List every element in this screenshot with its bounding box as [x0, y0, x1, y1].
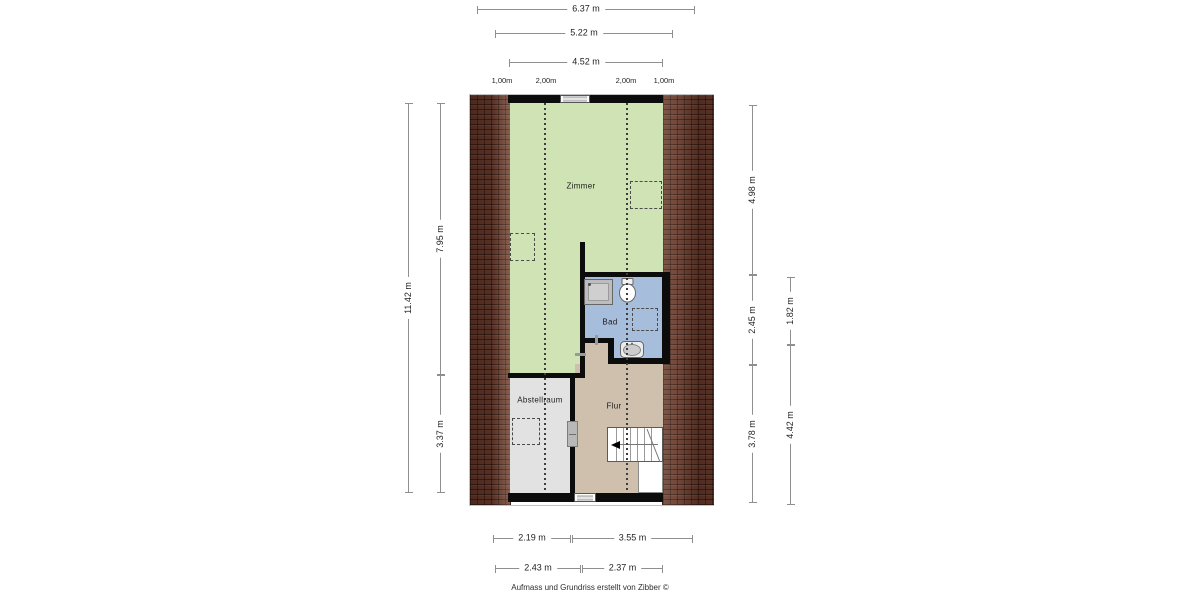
- dimension-top-inner: 5.22 m: [495, 33, 673, 34]
- room-label-flur: Flur: [607, 402, 622, 411]
- window-top: [560, 95, 590, 103]
- shower-drain: [588, 283, 591, 286]
- dimension-small-2: 2,00m: [536, 76, 557, 85]
- dimension-right-flur: 3.78 m: [752, 365, 753, 503]
- dimension-top-room: 4.52 m: [509, 62, 663, 63]
- furniture-outline-zimmer-right: [630, 181, 662, 209]
- dimension-right-flur-width: 4.42 m: [790, 345, 791, 505]
- dimension-label: 2.19 m: [513, 534, 551, 544]
- dimension-bottom-flur: 3.55 m: [572, 538, 693, 539]
- dimension-small-1: 1,00m: [492, 76, 513, 85]
- furniture-outline-bad: [632, 308, 658, 331]
- stairs: [607, 427, 663, 462]
- dimension-label: 6.37 m: [567, 5, 605, 15]
- shower-icon: [584, 279, 613, 305]
- dimension-label: 3.55 m: [614, 534, 652, 544]
- room-label-bad: Bad: [602, 318, 617, 327]
- stairwell-void: [638, 462, 663, 493]
- wall-bad-top: [580, 272, 663, 277]
- dimension-left-total: 11.42 m: [408, 103, 409, 493]
- dimension-bottom-left2: 2.43 m: [495, 568, 581, 569]
- furniture-outline-zimmer-left: [510, 233, 535, 261]
- wall-bad-bottom-right: [608, 358, 670, 364]
- door-opening-zimmer: [575, 353, 586, 356]
- wall-bad-right: [662, 272, 670, 364]
- dimension-label: 2.45 m: [748, 301, 758, 339]
- knee-wall-guide-left: [544, 103, 546, 493]
- dimension-right-zimmer: 4.98 m: [752, 105, 753, 275]
- dimension-top-total: 6.37 m: [477, 9, 695, 10]
- dimension-small-3: 2,00m: [616, 76, 637, 85]
- knee-wall-guide-right: [626, 103, 628, 493]
- stairs-down-arrow-icon: [611, 441, 620, 449]
- dimension-label: 3.37 m: [436, 415, 446, 453]
- roof-hatch-left: [470, 95, 511, 505]
- floor-plan: Zimmer Bad Abstellraum Flur: [470, 95, 713, 505]
- floorplan-page: 6.37 m 5.22 m 4.52 m 1,00m 2,00m 2,00m 1…: [0, 0, 1200, 600]
- door-opening-bad: [595, 335, 598, 345]
- sliding-door-abstellraum: [567, 421, 578, 447]
- dimension-label: 4.42 m: [786, 406, 796, 444]
- dimension-label: 4.52 m: [567, 58, 605, 68]
- wall-zimmer-bad-divider: [580, 242, 585, 378]
- dimension-label: 11.42 m: [404, 277, 414, 319]
- dimension-label: 4.98 m: [748, 171, 758, 209]
- room-label-abstellraum: Abstellraum: [517, 396, 563, 405]
- window-pane: [563, 97, 587, 102]
- dimension-bottom-right2: 2.37 m: [582, 568, 663, 569]
- dimension-bottom-abstellraum: 2.19 m: [493, 538, 571, 539]
- room-label-zimmer: Zimmer: [567, 182, 596, 191]
- dimension-left-upper: 7.95 m: [440, 103, 441, 375]
- shower-tray: [588, 283, 609, 301]
- window-bottom: [574, 493, 596, 502]
- credit-text: Aufmass und Grundriss erstellt von Zibbe…: [470, 583, 710, 592]
- dimension-label: 2.43 m: [519, 564, 557, 574]
- dimension-label: 7.95 m: [436, 220, 446, 258]
- dimension-right-bad: 2.45 m: [752, 275, 753, 365]
- dimension-right-bad-width: 1.82 m: [790, 277, 791, 345]
- dimension-left-lower: 3.37 m: [440, 375, 441, 493]
- dimension-label: 5.22 m: [565, 29, 603, 39]
- sink-icon: [620, 341, 644, 358]
- window-pane: [577, 495, 593, 500]
- dimension-small-4: 1,00m: [654, 76, 675, 85]
- dimension-label: 2.37 m: [604, 564, 642, 574]
- furniture-outline-abstellraum: [512, 418, 540, 445]
- dimension-label: 1.82 m: [786, 292, 796, 330]
- dimension-label: 3.78 m: [748, 415, 758, 453]
